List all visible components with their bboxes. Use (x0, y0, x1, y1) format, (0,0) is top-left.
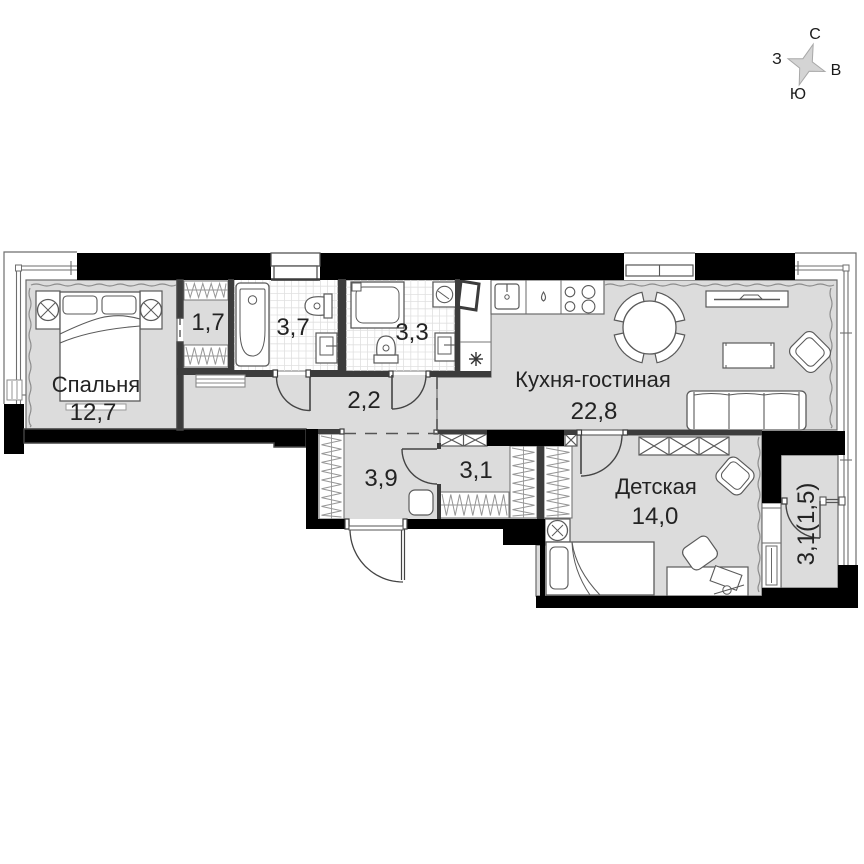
svg-text:Ю: Ю (790, 86, 806, 103)
svg-text:Кухня-гостиная: Кухня-гостиная (515, 367, 671, 392)
svg-text:12,7: 12,7 (70, 399, 117, 426)
svg-text:14,0: 14,0 (632, 503, 679, 530)
svg-text:3,1(1,5): 3,1(1,5) (793, 483, 820, 566)
svg-text:В: В (831, 62, 842, 79)
svg-text:2,2: 2,2 (347, 387, 380, 414)
svg-text:22,8: 22,8 (571, 398, 618, 425)
svg-text:3,7: 3,7 (276, 314, 309, 341)
svg-text:Спальня: Спальня (52, 372, 140, 397)
svg-text:З: З (772, 51, 782, 68)
svg-text:3,1: 3,1 (459, 457, 492, 484)
svg-text:Детская: Детская (615, 474, 697, 499)
svg-text:1,7: 1,7 (191, 309, 224, 336)
svg-text:3,3: 3,3 (395, 319, 428, 346)
svg-text:3,9: 3,9 (364, 465, 397, 492)
svg-text:С: С (809, 26, 821, 43)
